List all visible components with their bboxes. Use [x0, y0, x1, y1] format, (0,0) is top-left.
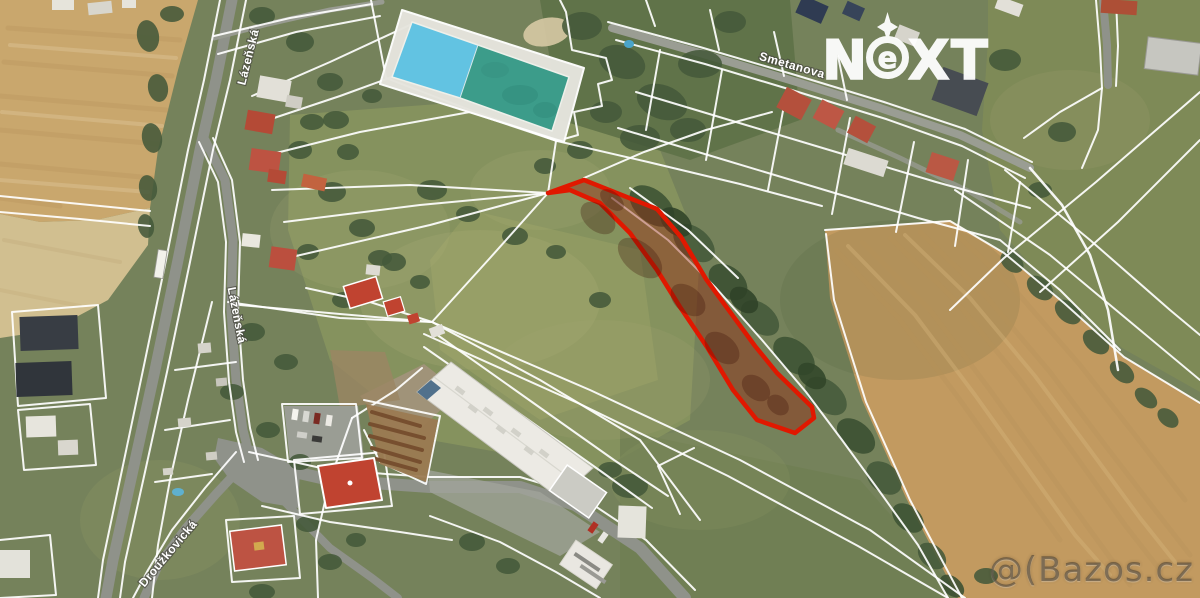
buildings-56 — [198, 342, 212, 353]
buildings-35 — [58, 440, 79, 456]
trees-73 — [1048, 122, 1076, 142]
buildings-34 — [26, 415, 57, 437]
buildings-38 — [254, 541, 265, 550]
buildings-60 — [163, 468, 174, 476]
trees-53 — [317, 73, 343, 91]
trees-50 — [323, 111, 349, 129]
buildings-59 — [206, 452, 218, 461]
trees-54 — [300, 114, 324, 130]
buildings-58 — [178, 417, 192, 427]
trees-34 — [714, 11, 746, 33]
next-letter-x: X — [908, 34, 950, 88]
trees-42 — [410, 275, 430, 289]
next-logo-watermark: N e X T — [820, 12, 1012, 98]
garden-pool — [172, 488, 184, 496]
trees-60 — [256, 422, 280, 438]
trees-33 — [670, 118, 706, 142]
trees-30 — [678, 50, 722, 78]
next-letter-e: e — [866, 36, 909, 79]
trees-37 — [417, 180, 447, 200]
trees-56 — [362, 89, 382, 103]
bazos-watermark: @(Bazos.cz — [989, 550, 1194, 590]
trees-26 — [160, 6, 184, 22]
buildings-19 — [87, 1, 112, 15]
aerial-map: LázeňskáLázeňskáSmetanovaDroužkovická N … — [0, 0, 1200, 598]
aerial-map-svg: LázeňskáLázeňskáSmetanovaDroužkovická — [0, 0, 1200, 598]
trees-68 — [612, 474, 648, 498]
buildings-57 — [216, 378, 228, 387]
trees-45 — [349, 219, 375, 237]
buildings-28 — [269, 246, 298, 270]
pool-shade — [502, 85, 538, 105]
trees-69 — [598, 462, 622, 478]
industrial-hall — [1144, 37, 1200, 75]
next-letter-n: N — [822, 34, 867, 88]
buildings-18 — [52, 0, 74, 10]
trees-41 — [589, 292, 611, 308]
buildings-32 — [19, 315, 78, 351]
trees-32 — [590, 101, 622, 123]
trees-67 — [496, 558, 520, 574]
pool-shade — [481, 62, 509, 78]
trees-58 — [274, 354, 298, 370]
trees-52 — [286, 32, 314, 52]
trees-46 — [382, 253, 406, 271]
garden-pool — [624, 40, 634, 48]
roof-vent — [348, 481, 353, 486]
buildings-25 — [267, 169, 287, 184]
trees-65 — [346, 533, 366, 547]
trees-64 — [318, 554, 342, 570]
buildings-27 — [241, 233, 260, 248]
buildings-55 — [617, 506, 646, 539]
buildings-61 — [366, 264, 381, 275]
buildings-36 — [0, 550, 30, 578]
pool-shade — [533, 102, 557, 118]
buildings-20 — [122, 0, 136, 8]
next-letter-t: T — [951, 34, 988, 88]
trees-40 — [546, 245, 566, 259]
buildings-33 — [15, 361, 72, 397]
buildings-50 — [1101, 0, 1138, 15]
trees-55 — [337, 144, 359, 160]
